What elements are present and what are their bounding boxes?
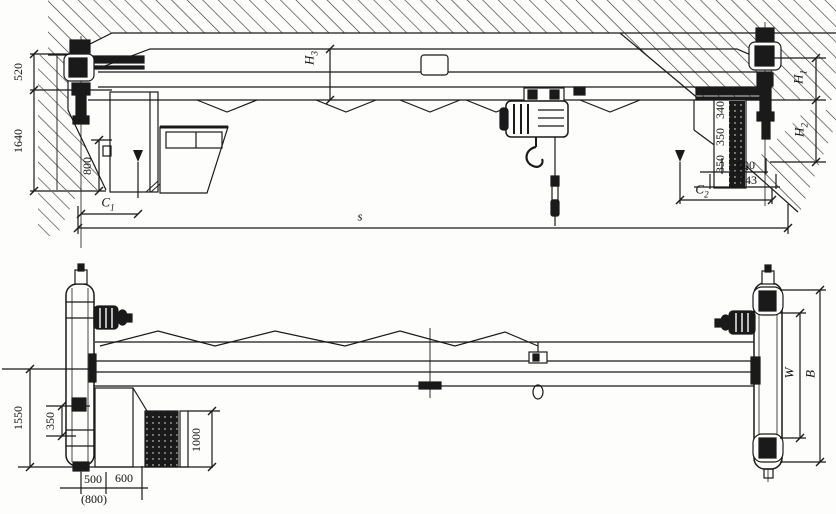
hook-icon <box>527 137 543 167</box>
stiffener-mark <box>316 100 376 112</box>
dim-label-h3: H3 <box>303 51 320 65</box>
pendant-control <box>551 137 559 226</box>
crane-drawing-sheet: 520 1640 800 C1 s H3 H1 H2 340 350 350 6… <box>0 0 836 514</box>
hook-plan-mark <box>533 385 543 399</box>
dim-label-rail-bottom: 350 <box>714 155 726 173</box>
dim-label-w: W <box>783 368 796 379</box>
dim-label-800: 800 <box>81 157 93 175</box>
dim-label-c1: C1 <box>101 196 114 213</box>
h3-dimension-line <box>326 45 334 104</box>
girder-plan <box>88 328 760 399</box>
dim-label-600-top: 600 <box>737 159 755 171</box>
operator-cab <box>160 127 228 193</box>
dim-label-800-alt: (800) <box>81 493 107 505</box>
wheel-hub <box>72 398 86 411</box>
dim-label-350: 350 <box>44 412 56 430</box>
ladder-frame <box>103 92 160 192</box>
crane-line-drawing <box>0 0 836 514</box>
festoon-cable <box>100 331 538 346</box>
girder-opening <box>421 55 448 75</box>
trolley-stop <box>574 87 585 95</box>
dim-label-1550: 1550 <box>12 406 24 430</box>
stiffener-mark <box>400 100 460 112</box>
buffer <box>762 271 774 284</box>
dim-label-h2: H2 <box>793 123 810 137</box>
dim-label-1640: 1640 <box>12 129 24 153</box>
buffer <box>75 270 87 284</box>
dim-label-h1: H1 <box>792 70 809 84</box>
girder-truck-pad-right <box>751 357 760 384</box>
dim-label-span: s <box>357 210 362 223</box>
dim-label-500: 500 <box>84 473 102 485</box>
right-travel-motor <box>715 311 755 334</box>
dim-label-rail-mid: 350 <box>714 128 726 146</box>
dim-label-c2: C2 <box>695 183 708 200</box>
runway-bracket-right <box>696 88 770 100</box>
stiffener-mark <box>197 100 257 112</box>
left-travel-motor <box>94 306 132 329</box>
left-wall-hatch <box>38 55 106 236</box>
stiffener-mark <box>580 100 640 112</box>
runway-bracket-left <box>92 56 144 69</box>
girder-truck-pad-left <box>89 354 96 382</box>
electric-hoist <box>500 88 568 137</box>
span-dimension <box>74 204 792 234</box>
dim-label-520: 520 <box>12 63 24 81</box>
dim-label-b: B <box>804 370 817 378</box>
dim-label-743: 743 <box>739 174 757 186</box>
dim-label-600-bottom: 600 <box>115 472 133 484</box>
dim-label-rail-top: 340 <box>714 101 726 119</box>
dim-label-1000: 1000 <box>190 428 202 452</box>
